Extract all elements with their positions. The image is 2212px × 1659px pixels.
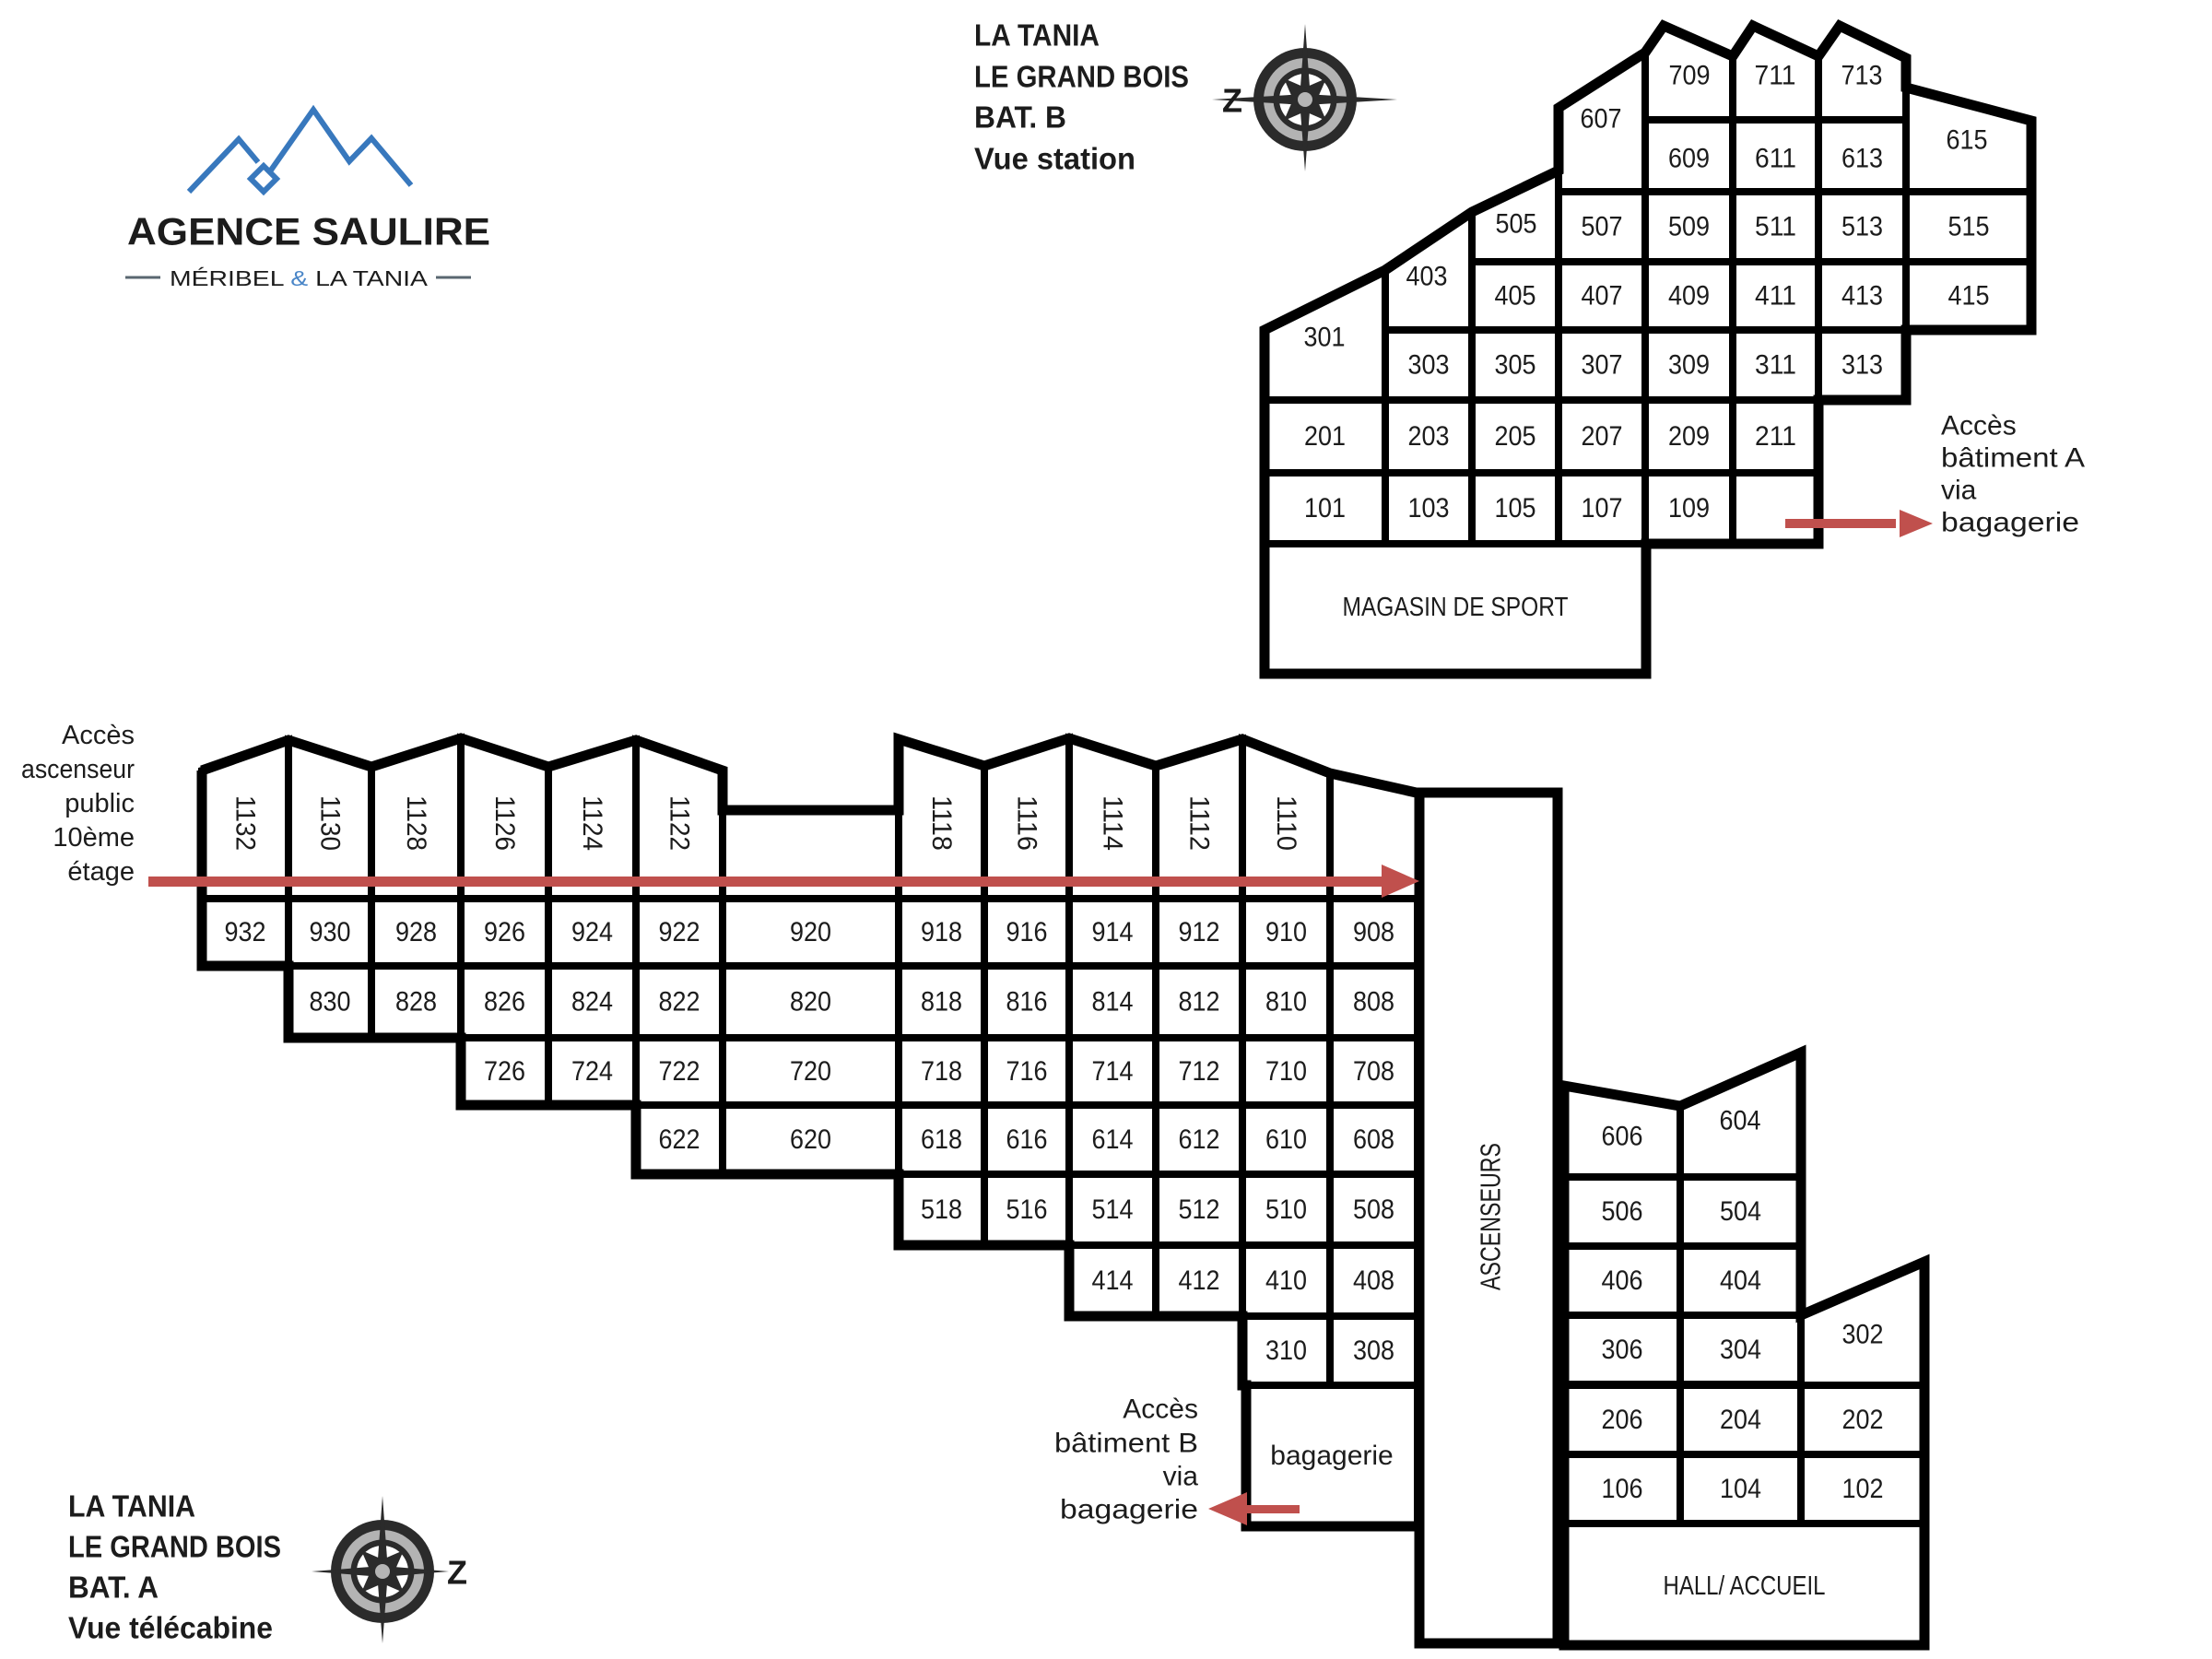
svg-text:812: 812 xyxy=(1179,987,1220,1018)
svg-text:1110: 1110 xyxy=(1271,795,1301,851)
svg-text:311: 311 xyxy=(1755,350,1796,381)
svg-text:1124: 1124 xyxy=(577,795,607,851)
svg-text:614: 614 xyxy=(1092,1124,1134,1155)
svg-text:403: 403 xyxy=(1406,262,1448,292)
svg-text:504: 504 xyxy=(1720,1196,1761,1227)
svg-text:Z: Z xyxy=(447,1554,467,1592)
svg-text:AGENCE SAULIRE: AGENCE SAULIRE xyxy=(127,210,490,253)
svg-text:LE GRAND BOIS: LE GRAND BOIS xyxy=(68,1530,281,1564)
svg-text:209: 209 xyxy=(1668,421,1710,452)
svg-text:301: 301 xyxy=(1304,323,1346,353)
svg-text:830: 830 xyxy=(310,987,351,1018)
svg-text:1132: 1132 xyxy=(230,795,261,851)
svg-text:202: 202 xyxy=(1842,1405,1884,1435)
svg-text:1122: 1122 xyxy=(665,795,695,851)
svg-text:711: 711 xyxy=(1755,61,1796,91)
svg-text:411: 411 xyxy=(1755,281,1796,312)
svg-text:513: 513 xyxy=(1841,212,1883,242)
svg-text:516: 516 xyxy=(1006,1194,1048,1225)
svg-text:910: 910 xyxy=(1265,917,1307,947)
svg-text:512: 512 xyxy=(1179,1194,1220,1225)
svg-text:507: 507 xyxy=(1582,212,1623,242)
svg-text:Vue station: Vue station xyxy=(974,142,1135,176)
svg-text:107: 107 xyxy=(1582,493,1623,524)
svg-text:306: 306 xyxy=(1602,1335,1643,1365)
svg-text:606: 606 xyxy=(1602,1122,1643,1152)
svg-text:Accès: Accès xyxy=(62,721,135,750)
svg-text:818: 818 xyxy=(921,987,962,1018)
svg-text:104: 104 xyxy=(1720,1474,1761,1504)
svg-text:206: 206 xyxy=(1602,1405,1643,1435)
svg-text:308: 308 xyxy=(1353,1335,1394,1366)
svg-text:303: 303 xyxy=(1408,350,1450,381)
svg-text:305: 305 xyxy=(1495,350,1536,381)
svg-text:508: 508 xyxy=(1353,1194,1394,1225)
svg-text:313: 313 xyxy=(1841,350,1883,381)
svg-text:Accès: Accès xyxy=(1123,1394,1198,1425)
svg-text:ascenseur: ascenseur xyxy=(21,755,135,784)
svg-text:924: 924 xyxy=(571,917,613,947)
svg-text:310: 310 xyxy=(1265,1335,1307,1366)
svg-text:611: 611 xyxy=(1755,144,1796,174)
svg-text:413: 413 xyxy=(1841,281,1883,312)
svg-text:722: 722 xyxy=(659,1056,700,1087)
svg-text:506: 506 xyxy=(1602,1196,1643,1227)
svg-text:201: 201 xyxy=(1304,421,1346,452)
svg-text:203: 203 xyxy=(1408,421,1450,452)
svg-text:718: 718 xyxy=(921,1056,962,1087)
svg-text:MÉRIBEL & LA TANIA: MÉRIBEL & LA TANIA xyxy=(170,266,429,290)
svg-text:Vue télécabine: Vue télécabine xyxy=(68,1611,273,1645)
svg-text:713: 713 xyxy=(1841,61,1883,91)
svg-text:622: 622 xyxy=(659,1124,700,1155)
svg-text:via: via xyxy=(1163,1462,1199,1492)
svg-text:102: 102 xyxy=(1842,1474,1884,1504)
svg-text:407: 407 xyxy=(1582,281,1623,312)
svg-text:309: 309 xyxy=(1668,350,1710,381)
svg-text:211: 211 xyxy=(1755,421,1796,452)
svg-text:412: 412 xyxy=(1179,1265,1220,1296)
svg-text:public: public xyxy=(65,789,135,818)
svg-text:708: 708 xyxy=(1353,1056,1394,1087)
svg-text:bagagerie: bagagerie xyxy=(1941,508,2079,538)
svg-text:505: 505 xyxy=(1496,209,1537,240)
svg-text:912: 912 xyxy=(1179,917,1220,947)
svg-text:408: 408 xyxy=(1353,1265,1394,1296)
svg-text:610: 610 xyxy=(1265,1124,1307,1155)
svg-text:1126: 1126 xyxy=(489,795,520,851)
svg-text:908: 908 xyxy=(1353,917,1394,947)
svg-text:207: 207 xyxy=(1582,421,1623,452)
svg-text:816: 816 xyxy=(1006,987,1048,1018)
svg-text:MAGASIN DE SPORT: MAGASIN DE SPORT xyxy=(1343,593,1569,622)
svg-text:1116: 1116 xyxy=(1012,795,1042,851)
svg-text:étage: étage xyxy=(67,857,135,887)
svg-text:608: 608 xyxy=(1353,1124,1394,1155)
svg-text:bagagerie: bagagerie xyxy=(1060,1495,1198,1525)
svg-text:511: 511 xyxy=(1755,212,1796,242)
svg-text:106: 106 xyxy=(1602,1474,1643,1504)
svg-text:510: 510 xyxy=(1265,1194,1307,1225)
svg-text:1118: 1118 xyxy=(926,795,957,851)
svg-text:10ème: 10ème xyxy=(53,823,135,853)
svg-text:Z: Z xyxy=(1222,82,1242,120)
svg-text:1130: 1130 xyxy=(315,795,346,851)
svg-text:618: 618 xyxy=(921,1124,962,1155)
svg-text:712: 712 xyxy=(1179,1056,1220,1087)
svg-text:716: 716 xyxy=(1006,1056,1048,1087)
svg-text:810: 810 xyxy=(1265,987,1307,1018)
svg-text:LA TANIA: LA TANIA xyxy=(974,18,1100,53)
svg-text:bâtiment A: bâtiment A xyxy=(1941,443,2085,474)
svg-text:LA TANIA: LA TANIA xyxy=(68,1489,195,1524)
svg-text:1114: 1114 xyxy=(1098,795,1128,851)
svg-text:105: 105 xyxy=(1495,493,1536,524)
svg-text:720: 720 xyxy=(790,1056,831,1087)
svg-text:BAT. A: BAT. A xyxy=(68,1571,159,1605)
svg-text:101: 101 xyxy=(1304,493,1346,524)
svg-text:bagagerie: bagagerie xyxy=(1270,1441,1393,1471)
svg-text:820: 820 xyxy=(790,987,831,1018)
svg-text:920: 920 xyxy=(790,917,831,947)
svg-text:926: 926 xyxy=(484,917,525,947)
svg-text:410: 410 xyxy=(1265,1265,1307,1296)
svg-text:607: 607 xyxy=(1581,104,1622,135)
svg-text:514: 514 xyxy=(1092,1194,1134,1225)
svg-text:932: 932 xyxy=(225,917,266,947)
svg-text:405: 405 xyxy=(1495,281,1536,312)
svg-text:109: 109 xyxy=(1668,493,1710,524)
svg-text:515: 515 xyxy=(1948,212,1990,242)
svg-text:928: 928 xyxy=(395,917,437,947)
svg-text:814: 814 xyxy=(1092,987,1134,1018)
svg-text:620: 620 xyxy=(790,1124,831,1155)
svg-text:Accès: Accès xyxy=(1941,411,2017,441)
svg-text:1128: 1128 xyxy=(401,795,431,851)
svg-text:916: 916 xyxy=(1006,917,1048,947)
svg-text:828: 828 xyxy=(395,987,437,1018)
svg-text:BAT. B: BAT. B xyxy=(974,100,1066,135)
svg-text:612: 612 xyxy=(1179,1124,1220,1155)
svg-text:822: 822 xyxy=(659,987,700,1018)
svg-text:613: 613 xyxy=(1841,144,1883,174)
svg-text:709: 709 xyxy=(1669,61,1711,91)
svg-text:409: 409 xyxy=(1668,281,1710,312)
svg-text:518: 518 xyxy=(921,1194,962,1225)
svg-text:HALL/ ACCUEIL: HALL/ ACCUEIL xyxy=(1664,1571,1826,1601)
svg-text:922: 922 xyxy=(659,917,700,947)
svg-text:LE GRAND BOIS: LE GRAND BOIS xyxy=(974,60,1189,94)
svg-text:726: 726 xyxy=(484,1056,525,1087)
svg-text:ASCENSEURS: ASCENSEURS xyxy=(1475,1143,1507,1290)
svg-text:616: 616 xyxy=(1006,1124,1048,1155)
svg-text:604: 604 xyxy=(1720,1106,1761,1136)
svg-text:204: 204 xyxy=(1720,1405,1761,1435)
svg-text:406: 406 xyxy=(1602,1265,1643,1296)
svg-text:930: 930 xyxy=(310,917,351,947)
svg-text:609: 609 xyxy=(1668,144,1710,174)
svg-text:808: 808 xyxy=(1353,987,1394,1018)
svg-text:414: 414 xyxy=(1092,1265,1134,1296)
svg-text:824: 824 xyxy=(571,987,613,1018)
svg-text:bâtiment B: bâtiment B xyxy=(1054,1429,1198,1459)
svg-text:415: 415 xyxy=(1948,281,1990,312)
svg-text:714: 714 xyxy=(1092,1056,1134,1087)
svg-text:1112: 1112 xyxy=(1184,795,1215,851)
svg-text:103: 103 xyxy=(1408,493,1450,524)
svg-text:509: 509 xyxy=(1668,212,1710,242)
svg-text:205: 205 xyxy=(1495,421,1536,452)
svg-text:724: 724 xyxy=(571,1056,613,1087)
svg-text:615: 615 xyxy=(1947,125,1988,156)
svg-text:404: 404 xyxy=(1720,1265,1761,1296)
svg-text:304: 304 xyxy=(1720,1335,1761,1365)
svg-text:918: 918 xyxy=(921,917,962,947)
svg-text:710: 710 xyxy=(1265,1056,1307,1087)
svg-text:914: 914 xyxy=(1092,917,1134,947)
svg-text:307: 307 xyxy=(1582,350,1623,381)
svg-text:302: 302 xyxy=(1842,1320,1884,1350)
svg-text:via: via xyxy=(1941,476,1977,506)
svg-text:826: 826 xyxy=(484,987,525,1018)
